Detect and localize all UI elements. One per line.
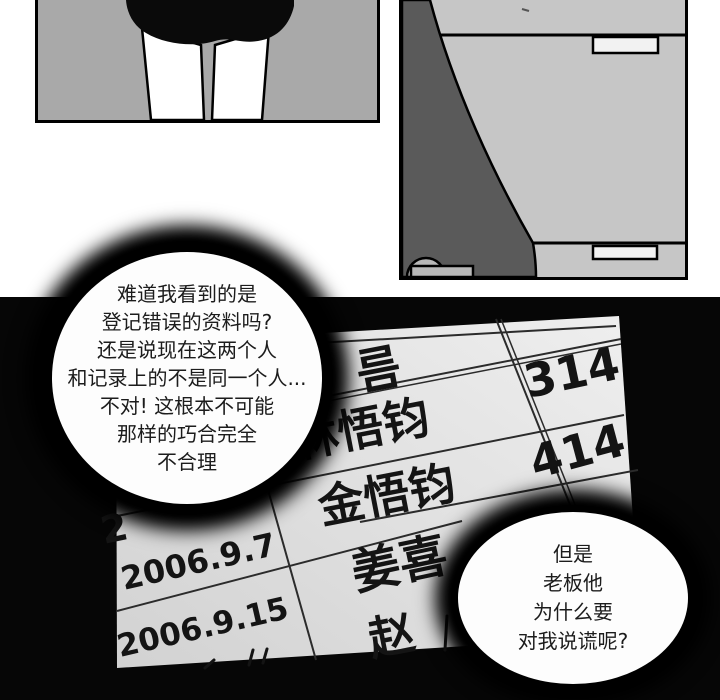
thought-bubble-left: 难道我看到的是 登记错误的资料吗? 还是说现在这两个人 和记录上的不是同一个人.…	[28, 228, 346, 528]
bubble1-line: 和记录上的不是同一个人...	[67, 364, 306, 392]
bubble1-line: 那样的巧合完全	[117, 420, 257, 448]
bubble1-line: 难道我看到的是	[117, 280, 257, 308]
bubble2-line: 对我说谎呢?	[518, 627, 629, 656]
bubble-body: 难道我看到的是 登记错误的资料吗? 还是说现在这两个人 和记录上的不是同一个人.…	[52, 252, 322, 504]
comic-page: 름 314 林悟钧 414 金悟钧 2 2006.9.7 姜喜 2006.9.1…	[0, 0, 720, 700]
bubble-body: 但是 老板他 为什么要 对我说谎呢?	[458, 512, 688, 684]
thought-bubble-right: 但是 老板他 为什么要 对我说谎呢?	[438, 492, 708, 700]
bubble1-line: 不对! 这根本不可能	[100, 392, 274, 420]
bubble1-line: 还是说现在这两个人	[97, 336, 277, 364]
bubble2-line: 老板他	[543, 569, 603, 598]
bubble1-line: 不合理	[157, 448, 217, 476]
bubble2-line: 但是	[553, 540, 593, 569]
bubble2-line: 为什么要	[533, 598, 613, 627]
bubble1-line: 登记错误的资料吗?	[102, 308, 273, 336]
